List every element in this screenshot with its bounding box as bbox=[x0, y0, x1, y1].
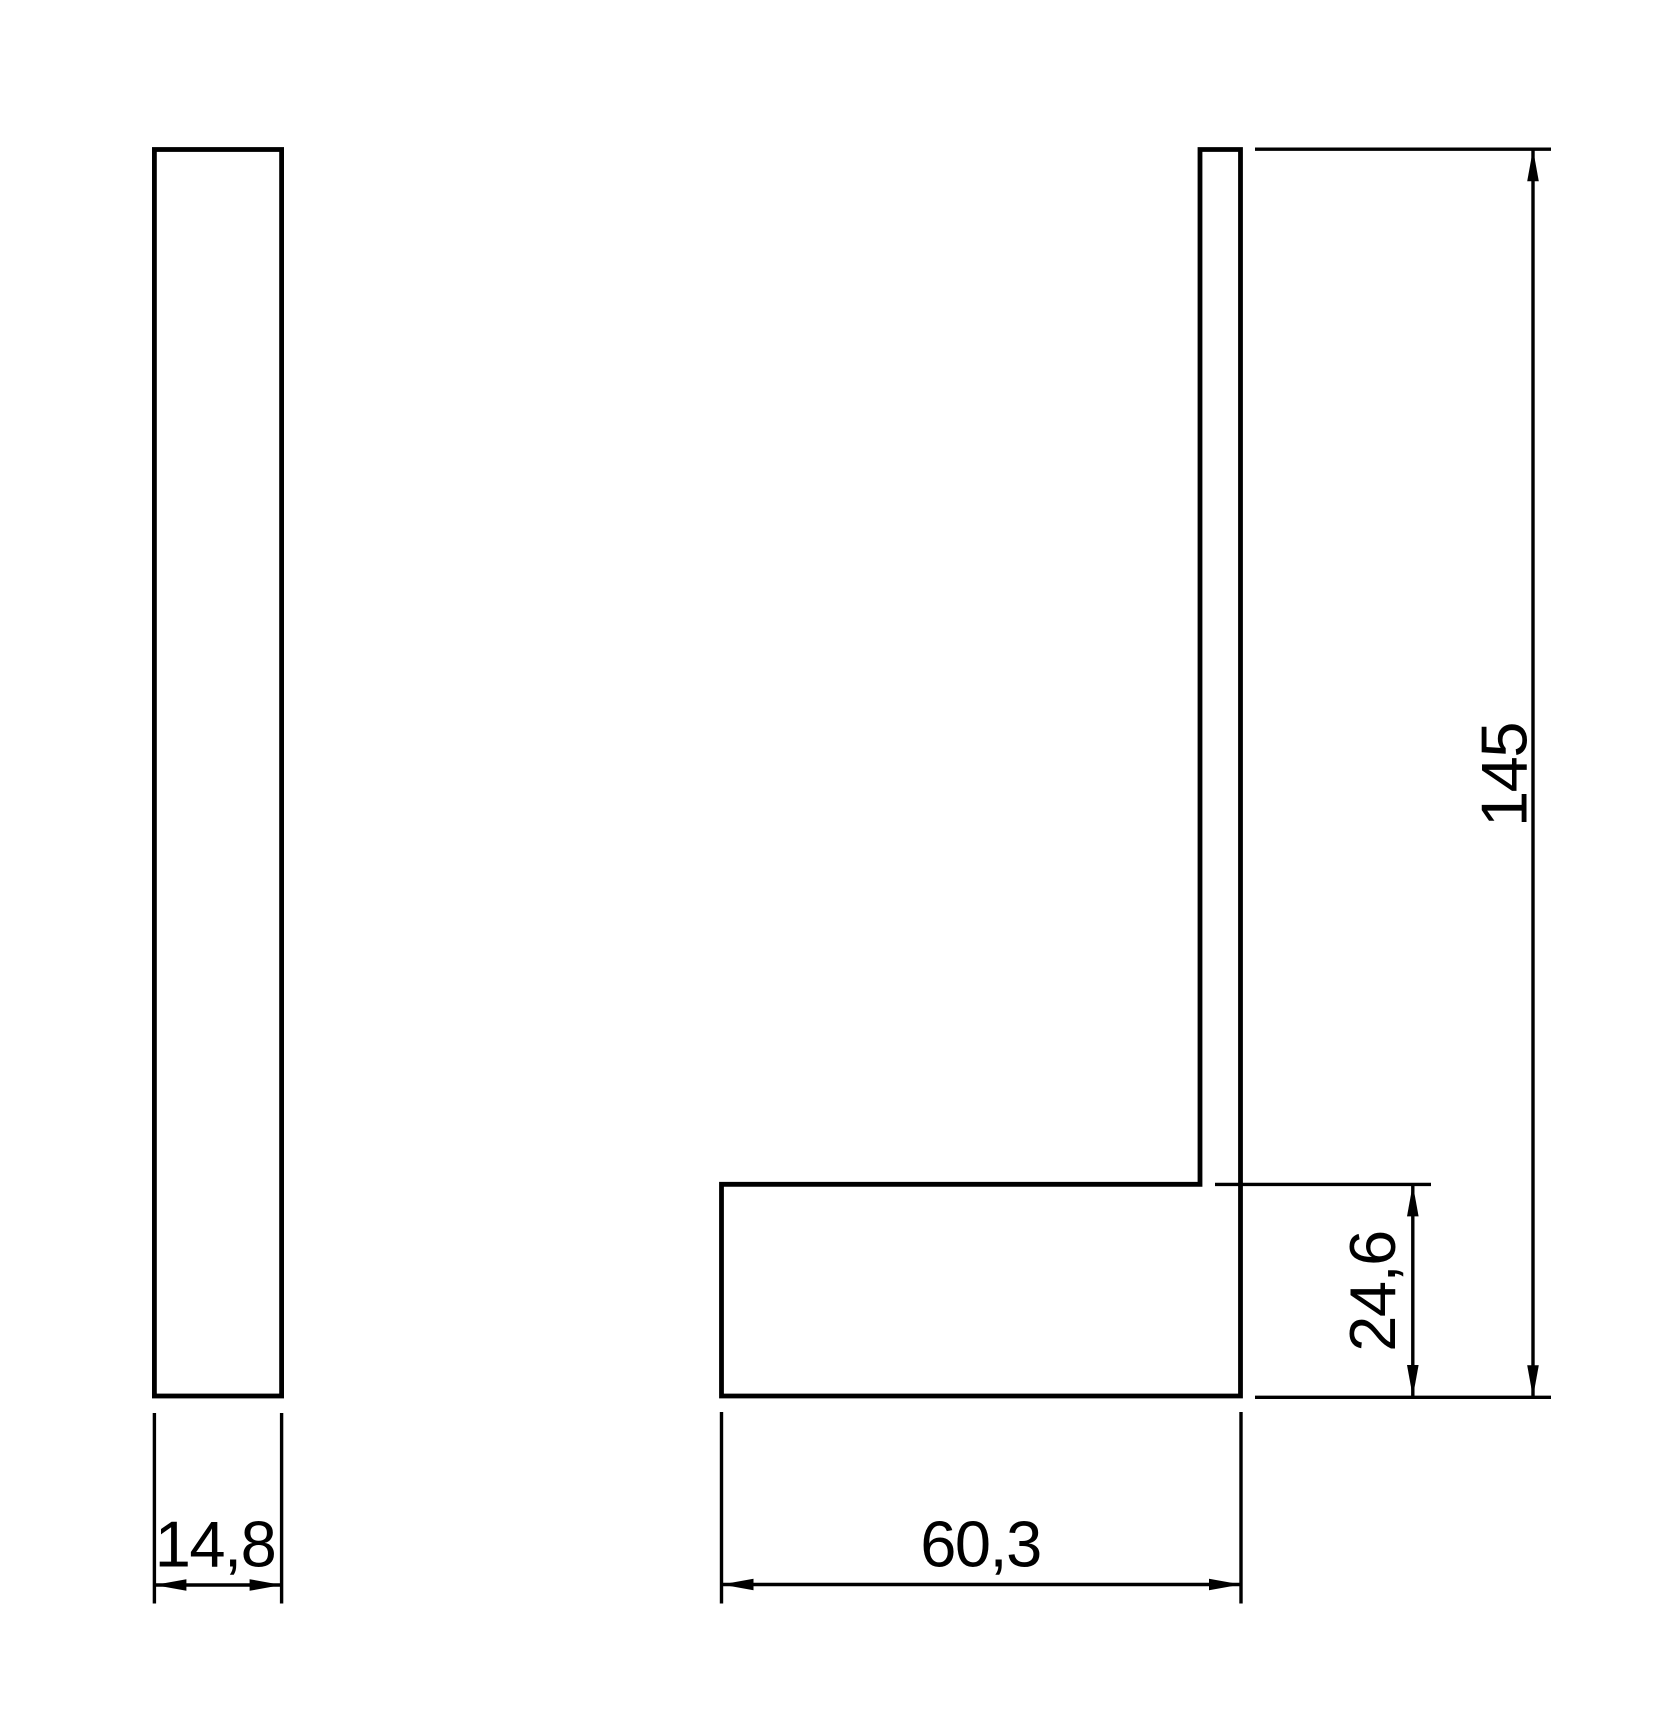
svg-text:24,6: 24,6 bbox=[1336, 1231, 1409, 1352]
svg-text:145: 145 bbox=[1468, 723, 1541, 827]
svg-text:14,8: 14,8 bbox=[155, 1508, 276, 1581]
svg-text:60,3: 60,3 bbox=[920, 1508, 1041, 1581]
